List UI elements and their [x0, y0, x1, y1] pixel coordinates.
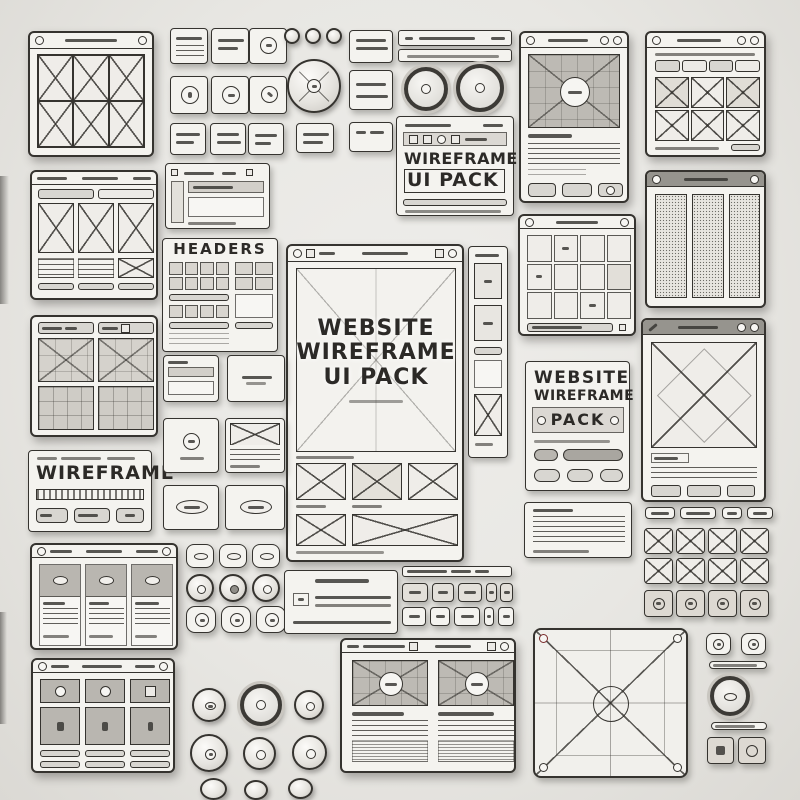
scribble	[255, 134, 277, 137]
bar	[78, 283, 114, 290]
glyph-key	[644, 590, 673, 617]
window-grid-diagonals	[28, 31, 154, 157]
window-pricing-columns	[31, 658, 175, 773]
card-text	[43, 608, 78, 626]
window-titlebar	[520, 216, 634, 229]
x-canvas	[651, 342, 757, 448]
thin-bar	[711, 722, 767, 730]
envelope-flap	[230, 423, 280, 445]
mini-window-card	[163, 355, 219, 402]
squircle-button	[186, 606, 216, 633]
scribble	[82, 177, 118, 180]
scribble	[176, 37, 202, 40]
texture-column	[655, 194, 687, 298]
button	[562, 183, 592, 197]
window-dot-icon	[750, 323, 759, 332]
glyph-band	[403, 132, 507, 146]
tab-row	[655, 60, 760, 72]
image-circle-label	[560, 77, 590, 107]
x-placeholder	[296, 463, 346, 500]
scribble-title	[315, 579, 369, 583]
scribble-title	[362, 252, 408, 255]
article-column	[438, 660, 514, 768]
bottom-bar	[527, 323, 613, 332]
round-knob	[192, 688, 226, 722]
bar	[38, 283, 74, 290]
icon-button-power	[211, 76, 249, 114]
scribble	[37, 457, 57, 460]
knob-center	[421, 84, 431, 94]
window-dot-icon	[500, 642, 509, 651]
x-placeholder	[726, 77, 760, 108]
window-square-icon	[487, 642, 496, 651]
text-box	[168, 381, 214, 395]
scribble	[419, 37, 475, 40]
scribble	[405, 37, 413, 40]
glyph-icon	[260, 37, 277, 54]
scribble	[319, 252, 335, 255]
x-key	[708, 558, 737, 584]
column-body	[85, 707, 125, 745]
pack-line2: WIREFRAME	[534, 389, 634, 405]
window-hero-article	[519, 31, 629, 203]
text-block	[169, 333, 229, 345]
wireframe-title: WIREFRAME	[36, 463, 175, 484]
x-diagram-board	[533, 628, 688, 778]
scribble	[370, 131, 384, 134]
article-heading	[438, 712, 494, 716]
window-three-columns	[30, 170, 158, 300]
round-knob	[292, 735, 327, 770]
glyph-icon	[171, 169, 178, 176]
label-card	[225, 485, 285, 530]
chip-bar	[402, 566, 512, 577]
ui-button-tile	[170, 28, 208, 64]
search-bar	[398, 30, 512, 46]
card-link	[135, 635, 157, 638]
diamond-guide	[657, 348, 751, 442]
scribble	[61, 457, 101, 460]
scribble	[296, 551, 384, 554]
pack-band: PACK	[532, 407, 624, 433]
scribble	[655, 53, 755, 56]
x-key	[740, 558, 769, 584]
ui-button-tile	[249, 28, 287, 64]
pack-card-title-line1: WIREFRAME	[404, 150, 518, 168]
scribble	[107, 457, 135, 460]
image-placeholder	[38, 338, 94, 382]
wireframe-label-card: WIREFRAME	[28, 450, 152, 532]
x-placeholder	[38, 203, 74, 253]
band	[188, 181, 264, 193]
x-placeholder	[73, 55, 108, 101]
scribble	[133, 177, 151, 180]
pill-button	[534, 469, 560, 482]
text-box	[474, 360, 502, 388]
window-square-icon	[409, 642, 418, 651]
scribble-title	[37, 177, 67, 180]
oval-scribble	[176, 500, 208, 514]
scribble	[356, 47, 388, 50]
text-box	[235, 294, 273, 318]
window-dot-icon	[613, 36, 622, 45]
scribble	[176, 141, 194, 144]
x-placeholder	[118, 258, 154, 278]
paragraph-lines	[230, 449, 280, 461]
corner-dot-icon	[539, 763, 548, 772]
scribble	[483, 124, 503, 127]
x-placeholder	[408, 463, 458, 500]
glyph-key	[676, 590, 705, 617]
band	[168, 367, 214, 377]
field-line	[315, 596, 391, 599]
scribble	[168, 361, 188, 364]
leaf-icon	[261, 86, 278, 103]
scribble-title	[556, 221, 598, 224]
key-chip	[484, 607, 494, 626]
scribble	[534, 440, 610, 443]
round-knob	[240, 684, 282, 726]
key-chip	[402, 583, 428, 602]
tab	[655, 60, 680, 72]
scribble-lines	[176, 45, 204, 57]
column-header	[130, 679, 170, 703]
wireframe-ui-pack-collage: WIREFRAME UI PACK	[0, 0, 800, 800]
scribble	[136, 550, 158, 553]
scribble	[86, 550, 122, 553]
scribble-title	[678, 326, 718, 329]
heading-scribble	[528, 134, 572, 138]
round-knob	[456, 64, 504, 112]
x-placeholder	[118, 203, 154, 253]
column-header	[85, 679, 125, 703]
thin-bar	[709, 661, 767, 669]
bar	[130, 750, 170, 757]
x-placeholder	[73, 101, 108, 147]
scribble	[303, 133, 329, 136]
scribble	[230, 465, 260, 468]
round-knob	[190, 734, 228, 772]
scribble	[465, 138, 487, 141]
scribble	[217, 141, 241, 144]
article-image	[438, 660, 514, 706]
round-button	[252, 574, 280, 602]
x-key	[740, 528, 769, 554]
key-chip	[402, 607, 426, 626]
pin-icon	[181, 86, 199, 104]
paragraph-lines	[651, 467, 757, 481]
nav-band	[38, 189, 94, 199]
scribble-title	[684, 178, 728, 181]
pill-button	[567, 469, 593, 482]
envelope-card	[225, 418, 285, 473]
x-grid	[655, 77, 760, 141]
window-dot-icon	[750, 175, 759, 184]
scribble	[296, 456, 354, 459]
sidebar-box	[474, 305, 502, 341]
paragraph-lines	[528, 143, 620, 167]
center-circle	[593, 686, 629, 722]
scribble	[176, 133, 200, 136]
x-placeholder	[38, 101, 73, 147]
cell-grid	[527, 235, 631, 319]
article-text	[438, 720, 514, 736]
column-header	[40, 679, 80, 703]
window-tabs-grid	[645, 31, 766, 157]
hero-canvas: WEBSITE WIREFRAME UI PACK	[296, 268, 456, 452]
pack-card-title-line2: UI PACK	[404, 169, 505, 193]
scribble	[184, 172, 214, 175]
scribble	[475, 443, 493, 446]
window-dot-icon	[526, 36, 535, 45]
x-placeholder	[655, 77, 689, 108]
bar	[474, 347, 502, 355]
header-band	[98, 322, 154, 334]
x-key	[644, 558, 673, 584]
band-dot-icon	[610, 416, 619, 425]
power-icon	[222, 86, 240, 104]
window-dot-icon	[35, 36, 44, 45]
bar	[169, 322, 229, 329]
round-knob	[243, 737, 276, 770]
ui-button-tile	[248, 123, 284, 155]
card-image	[86, 565, 126, 597]
window-texture-columns	[645, 170, 766, 308]
x-key	[676, 528, 705, 554]
squircle-button	[219, 544, 247, 568]
headers-panel: HEADERS	[162, 238, 278, 352]
scribble	[648, 323, 658, 332]
x-key	[644, 528, 673, 554]
oval-scribble	[240, 500, 272, 514]
card-text	[89, 608, 124, 626]
scribble	[405, 210, 501, 213]
scribble	[296, 505, 326, 508]
headers-title: HEADERS	[163, 241, 277, 258]
pricing-column	[130, 679, 170, 769]
corner-dot-icon	[539, 634, 548, 643]
scribble-title	[677, 39, 721, 42]
scribble	[407, 570, 447, 573]
main-title-line2: WIREFRAME	[296, 341, 455, 366]
ui-button-tile	[170, 123, 206, 155]
article-texture-block	[438, 740, 514, 762]
column-body	[130, 707, 170, 745]
scribble	[363, 645, 405, 648]
mini-toolbar-card	[165, 163, 270, 229]
round-knob	[200, 778, 227, 800]
window-titlebar	[32, 172, 156, 185]
card-title	[135, 602, 159, 605]
round-knob	[294, 690, 324, 720]
scribble	[82, 665, 122, 668]
scribble	[352, 505, 382, 508]
thumb-grid	[235, 262, 273, 290]
thumb-grid	[169, 262, 229, 290]
window-dot-icon	[737, 323, 746, 332]
scribble	[356, 39, 386, 42]
scribble	[347, 645, 359, 648]
ui-button-tile	[210, 123, 246, 155]
scribble	[475, 570, 489, 573]
card-link	[89, 635, 113, 638]
window-titlebar-dark	[643, 320, 764, 335]
header-band	[38, 322, 94, 334]
bar	[85, 761, 125, 768]
text-card	[349, 70, 393, 110]
key-chip	[458, 583, 482, 602]
text-card	[349, 122, 393, 152]
bar	[85, 750, 125, 757]
card-title	[43, 602, 65, 605]
window-dot-icon	[750, 36, 759, 45]
text-block	[78, 258, 114, 278]
card-link	[43, 635, 69, 638]
center-hero-window: WEBSITE WIREFRAME UI PACK	[286, 244, 464, 562]
window-dot-icon	[600, 36, 609, 45]
corner-dot-icon	[673, 634, 682, 643]
main-title-line1: WEBSITE	[317, 317, 434, 342]
window-titlebar-dark	[647, 172, 764, 187]
glyph-icon	[409, 135, 418, 144]
paragraph-lines	[533, 516, 625, 546]
ruler-band	[36, 489, 144, 500]
pill-button	[600, 469, 623, 482]
small-knob	[326, 28, 342, 44]
pricing-column	[85, 679, 125, 769]
bar	[731, 144, 760, 151]
window-square-icon	[435, 249, 444, 258]
glyph-key	[738, 737, 766, 764]
squircle-button	[256, 606, 286, 633]
paragraph-lines	[528, 169, 586, 178]
squircle-button	[741, 633, 766, 655]
scribble	[533, 550, 589, 553]
article-column	[352, 660, 428, 768]
icon-button-pin	[170, 76, 208, 114]
x-placeholder	[691, 77, 725, 108]
main-title-line3: UI PACK	[323, 366, 428, 391]
field-line	[315, 604, 391, 607]
scribble	[303, 141, 323, 144]
button	[116, 508, 144, 523]
scribble	[405, 124, 451, 127]
bar	[40, 750, 80, 757]
text-card	[349, 30, 393, 63]
nav-band	[98, 189, 154, 199]
form-card	[284, 570, 398, 634]
texture-column	[729, 194, 760, 298]
scribble	[218, 39, 244, 42]
pill-button	[534, 449, 558, 461]
chip-bar	[680, 507, 716, 519]
sidebar-label-scribble	[475, 254, 499, 257]
x-placeholder	[38, 55, 73, 101]
article-heading	[352, 712, 404, 716]
window-titlebar	[288, 246, 462, 262]
scribble	[51, 665, 69, 668]
window-dot-icon	[652, 36, 661, 45]
scribble	[356, 83, 386, 86]
key-chip	[498, 607, 514, 626]
bar	[118, 283, 154, 290]
window-dot-icon	[620, 218, 629, 227]
large-dial	[287, 59, 341, 113]
card-text	[135, 608, 170, 626]
scribble	[407, 55, 499, 58]
scribble-title	[65, 39, 117, 42]
button	[651, 485, 681, 497]
window-cell-grid	[518, 214, 636, 336]
squircle-button	[706, 633, 731, 655]
dial-center	[307, 79, 321, 93]
field-line	[293, 621, 391, 624]
x-placeholder	[352, 463, 402, 500]
icon-button-leaf	[249, 76, 287, 114]
window-card-list	[30, 543, 178, 650]
field-icon-box	[293, 593, 309, 606]
window-two-articles	[340, 638, 516, 773]
scribble-title	[548, 39, 588, 42]
squircle-button	[221, 606, 251, 633]
chip-bar	[645, 507, 675, 519]
bar	[130, 761, 170, 768]
window-dot-icon	[138, 36, 147, 45]
window-titlebar	[342, 640, 514, 653]
window-titlebar	[32, 545, 176, 558]
article-card	[131, 564, 173, 646]
pack-line1: WEBSITE	[534, 369, 630, 388]
article-text	[352, 720, 428, 736]
round-knob	[288, 778, 313, 799]
window-titlebar	[33, 660, 173, 673]
scribble	[180, 457, 204, 460]
x-key	[676, 558, 705, 584]
glyph-icon	[246, 169, 253, 176]
tab	[682, 60, 707, 72]
scribble	[135, 665, 155, 668]
bar	[40, 761, 80, 768]
text-box	[188, 197, 264, 217]
window-dot-icon	[448, 249, 457, 258]
cutoff-panel-edge	[0, 612, 7, 724]
card-image	[40, 565, 80, 597]
key-chip	[432, 583, 454, 602]
x-placeholder	[726, 110, 760, 141]
ui-button-tile	[211, 28, 249, 64]
tab	[735, 60, 760, 72]
article-card	[85, 564, 127, 646]
x-placeholder	[474, 394, 502, 436]
button	[36, 508, 68, 523]
button	[528, 183, 556, 197]
article-texture-block	[352, 740, 428, 762]
x-placeholder	[691, 110, 725, 141]
scribble	[356, 95, 388, 98]
text-block	[38, 258, 74, 278]
glyph-icon	[437, 135, 446, 144]
card-image	[132, 565, 172, 597]
lined-text-card	[524, 502, 632, 558]
scribble	[491, 37, 505, 40]
chip-bar	[722, 507, 742, 519]
x-placeholder	[78, 203, 114, 253]
pricing-column	[40, 679, 80, 769]
scribble	[217, 133, 239, 136]
key-chip	[486, 583, 497, 602]
band-dot-icon	[537, 416, 546, 425]
window-dot-icon	[38, 662, 47, 671]
